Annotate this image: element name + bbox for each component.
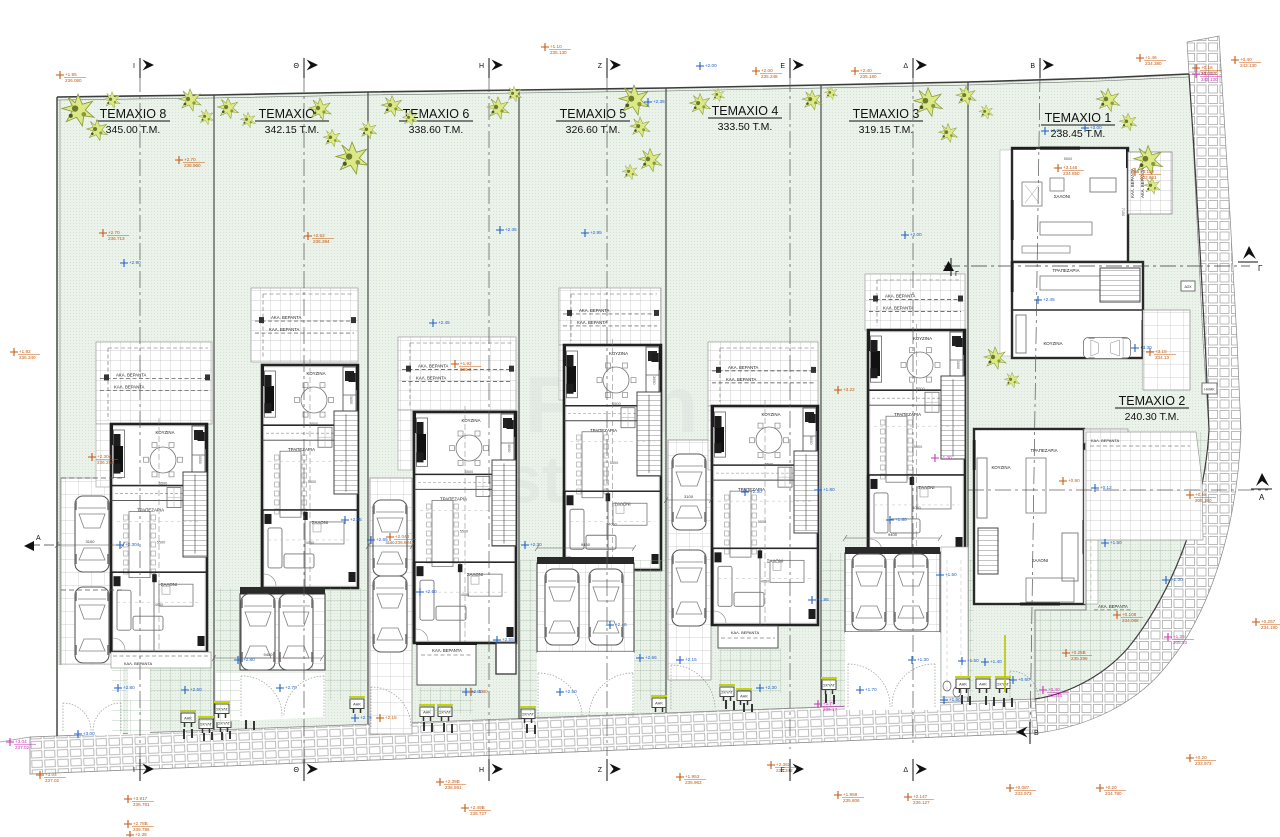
svg-text:+1.50: +1.50: [967, 658, 979, 663]
svg-text:5500: 5500: [310, 422, 318, 426]
svg-text:236.127: 236.127: [913, 800, 930, 805]
svg-text:+3.00: +3.00: [83, 731, 95, 736]
svg-text:9400: 9400: [888, 532, 898, 537]
svg-text:+0.12: +0.12: [1195, 492, 1207, 497]
svg-text:234.190: 234.190: [1261, 625, 1278, 630]
svg-text:ΚΑΛ. ΒΕΡΑΝΤΑ: ΚΑΛ. ΒΕΡΑΝΤΑ: [883, 306, 914, 311]
svg-text:ΚΑΛ. ΒΕΡΑΝΤΑ: ΚΑΛ. ΒΕΡΑΝΤΑ: [124, 661, 153, 666]
svg-text:ΤΕΜΑΧΙΟ 4: ΤΕΜΑΧΙΟ 4: [712, 104, 779, 118]
svg-text:+2.147: +2.147: [913, 794, 928, 799]
svg-text:236.591: 236.591: [445, 785, 462, 790]
svg-text:+2.95: +2.95: [590, 230, 602, 235]
svg-text:233.861: 233.861: [1140, 175, 1157, 180]
svg-text:+2.70: +2.70: [184, 157, 196, 162]
svg-text:+2.35: +2.35: [505, 227, 517, 232]
svg-text:+0.20: +0.20: [1105, 785, 1117, 790]
svg-text:9450: 9450: [581, 542, 591, 547]
svg-text:Η: Η: [479, 767, 484, 774]
svg-text:Θ: Θ: [294, 63, 300, 70]
svg-text:+2.30: +2.30: [765, 685, 777, 690]
svg-text:+2.45: +2.45: [350, 517, 362, 522]
svg-text:+2.45: +2.45: [1043, 297, 1055, 302]
svg-text:ΤΡΑΠΕΖΑΡΙΑ: ΤΡΑΠΕΖΑΡΙΑ: [1053, 268, 1080, 273]
svg-text:+1.35: +1.35: [1173, 634, 1185, 639]
svg-text:+2.304: +2.304: [97, 454, 112, 459]
svg-text:+2.80: +2.80: [243, 657, 255, 662]
svg-text:+3.00: +3.00: [1050, 128, 1062, 133]
svg-text:7100: 7100: [1121, 208, 1125, 216]
svg-text:5500: 5500: [157, 541, 165, 545]
svg-text:237.02: 237.02: [15, 745, 29, 750]
svg-text:+2.45: +2.45: [438, 320, 450, 325]
svg-text:+3.119: +3.119: [1140, 169, 1154, 174]
svg-text:+2.52: +2.52: [313, 233, 325, 238]
svg-text:+2.60: +2.60: [425, 589, 437, 594]
svg-text:+3.917: +3.917: [133, 796, 148, 801]
svg-text:+2.044: +2.044: [395, 534, 410, 539]
svg-text:319.15 Τ.Μ.: 319.15 Τ.Μ.: [859, 124, 914, 136]
svg-text:+1.50: +1.50: [1110, 540, 1122, 545]
svg-text:3650: 3650: [198, 455, 202, 463]
svg-text:235.130: 235.130: [550, 50, 567, 55]
svg-text:+0.087: +0.087: [1015, 785, 1030, 790]
svg-text:ΑΗΚ: ΑΗΚ: [655, 702, 663, 706]
svg-text:Ζ: Ζ: [598, 767, 603, 774]
svg-text:236.340: 236.340: [19, 355, 36, 360]
svg-text:5500: 5500: [765, 462, 773, 466]
svg-text:Ζ: Ζ: [598, 63, 603, 70]
svg-text:Α: Α: [36, 535, 41, 542]
svg-text:ΚΟΥΖΙΝΑ: ΚΟΥΖΙΝΑ: [462, 418, 481, 423]
svg-text:+3.30: +3.30: [1140, 345, 1152, 350]
svg-text:ΑΚΑ. ΒΕΡΑΝΤΑ: ΑΚΑ. ΒΕΡΑΝΤΑ: [418, 364, 449, 369]
svg-text:+2.70: +2.70: [108, 230, 120, 235]
svg-text:ΑΗΚ: ΑΗΚ: [740, 695, 748, 699]
svg-text:+1.60: +1.60: [949, 697, 961, 702]
svg-text:+2.15: +2.15: [385, 715, 397, 720]
svg-text:ΤΕΜΑΧΙΟ 1: ΤΕΜΑΧΙΟ 1: [1045, 111, 1112, 125]
svg-text:Ε: Ε: [780, 63, 785, 70]
svg-text:Θ: Θ: [294, 767, 300, 774]
svg-text:+1.95: +1.95: [65, 72, 77, 77]
svg-text:ΑΚΑ. ΒΕΡΑΝΤΑ: ΑΚΑ. ΒΕΡΑΝΤΑ: [271, 315, 302, 320]
svg-text:+2.90: +2.90: [129, 260, 141, 265]
svg-text:+2.49B: +2.49B: [470, 805, 485, 810]
svg-text:333.50 Τ.Μ.: 333.50 Τ.Μ.: [718, 121, 773, 133]
svg-text:+0.40: +0.40: [1201, 71, 1213, 76]
svg-text:5500: 5500: [914, 445, 922, 449]
svg-text:Η: Η: [479, 63, 484, 70]
svg-text:234.850: 234.850: [1063, 171, 1080, 176]
svg-text:+2.15: +2.15: [685, 657, 697, 662]
svg-text:+1.80: +1.80: [823, 487, 835, 492]
svg-text:5500: 5500: [1064, 157, 1072, 161]
svg-text:236.727: 236.727: [470, 811, 487, 816]
svg-text:+0.50: +0.50: [1018, 677, 1030, 682]
svg-text:+2.00: +2.00: [705, 63, 717, 68]
svg-text:236.624: 236.624: [395, 540, 412, 545]
svg-text:5500: 5500: [308, 480, 316, 484]
svg-text:ΚΟΥΖΙΝΑ: ΚΟΥΖΙΝΑ: [913, 336, 932, 341]
svg-text:+1.92: +1.92: [19, 349, 31, 354]
svg-text:Δ: Δ: [903, 767, 908, 774]
svg-text:Β: Β: [1034, 730, 1039, 737]
svg-text:236.17: 236.17: [823, 707, 837, 712]
svg-text:+1.92: +1.92: [460, 361, 472, 366]
svg-text:ΑΗΚ: ΑΗΚ: [959, 683, 967, 687]
svg-text:Γ: Γ: [1258, 264, 1263, 273]
svg-text:+1.50: +1.50: [945, 572, 957, 577]
svg-text:Ι: Ι: [133, 63, 135, 70]
svg-text:+1.30: +1.30: [917, 657, 929, 662]
svg-text:+2.362: +2.362: [776, 762, 791, 767]
svg-text:+0.90: +0.90: [1068, 478, 1080, 483]
svg-text:234.380: 234.380: [1145, 61, 1162, 66]
svg-text:345.00 Τ.Μ.: 345.00 Τ.Μ.: [106, 124, 161, 136]
svg-text:+1.86: +1.86: [817, 597, 829, 602]
svg-text:+1.77: +1.77: [823, 701, 835, 706]
svg-text:ΚΑΛ. ΒΕΡΑΝΤΑ: ΚΑΛ. ΒΕΡΑΝΤΑ: [269, 327, 300, 332]
svg-text:5500: 5500: [916, 387, 924, 391]
svg-text:234.13: 234.13: [1155, 355, 1169, 360]
svg-text:234.088: 234.088: [1122, 618, 1139, 623]
svg-text:+2.35: +2.35: [653, 99, 665, 104]
svg-text:235.806: 235.806: [843, 798, 860, 803]
svg-text:+1.30: +1.30: [940, 455, 952, 460]
svg-text:236.713: 236.713: [108, 236, 125, 241]
svg-text:+0.257: +0.257: [1261, 619, 1276, 624]
svg-text:+1.40: +1.40: [990, 659, 1002, 664]
svg-text:205.45: 205.45: [1048, 693, 1062, 698]
svg-text:235.180: 235.180: [860, 74, 877, 79]
svg-text:ΑΚΑ. ΒΕΡΑΝΤΑ: ΑΚΑ. ΒΕΡΑΝΤΑ: [728, 365, 759, 370]
svg-text:ΔΟΧ: ΔΟΧ: [1184, 285, 1192, 289]
svg-text:ΑΗΚ: ΑΗΚ: [979, 683, 987, 687]
svg-text:ΚΟΥΖΙΝΑ: ΚΟΥΖΙΝΑ: [609, 351, 628, 356]
svg-text:3650: 3650: [956, 361, 960, 369]
svg-text:+1.958: +1.958: [843, 792, 858, 797]
svg-text:3650: 3650: [507, 444, 511, 452]
svg-text:326.60 Τ.Μ.: 326.60 Τ.Μ.: [566, 124, 621, 136]
svg-text:+2.66: +2.66: [645, 655, 657, 660]
svg-text:+3.146: +3.146: [1063, 165, 1078, 170]
svg-text:ΣΚΥΛΤ: ΣΚΥΛΤ: [522, 713, 534, 717]
svg-text:+0.16: +0.16: [1201, 65, 1213, 70]
svg-text:ΑΚΑ. ΒΕΡΑΝΤΑ: ΑΚΑ. ΒΕΡΑΝΤΑ: [579, 308, 610, 313]
svg-text:3100: 3100: [684, 494, 694, 499]
svg-text:236.781: 236.781: [133, 802, 150, 807]
svg-text:+0.12: +0.12: [1100, 485, 1112, 490]
svg-text:240.30 Τ.Μ.: 240.30 Τ.Μ.: [1125, 411, 1180, 423]
svg-text:ΚΑΛ. ΒΕΡΑΝΤΑ: ΚΑΛ. ΒΕΡΑΝΤΑ: [577, 320, 608, 325]
svg-text:+2.55: +2.55: [502, 637, 514, 642]
svg-text:+3.00: +3.00: [1090, 125, 1102, 130]
svg-text:ΑΚΑ. ΒΕΡΑΝΤΑ: ΑΚΑ. ΒΕΡΑΝΤΑ: [116, 372, 147, 377]
svg-text:ΚΑΛ. ΒΕΡΑΝΤΑ: ΚΑΛ. ΒΕΡΑΝΤΑ: [726, 377, 757, 382]
svg-text:+2.80: +2.80: [123, 685, 135, 690]
svg-text:ΚΟΥΖΙΝΑ: ΚΟΥΖΙΝΑ: [992, 465, 1011, 470]
svg-text:233.973: 233.973: [1195, 761, 1212, 766]
svg-text:ΤΕΜΑΧΙΟ 5: ΤΕΜΑΧΙΟ 5: [560, 107, 627, 121]
svg-text:+3.04: +3.04: [45, 772, 57, 777]
svg-text:237.02: 237.02: [45, 778, 59, 783]
svg-text:Δ: Δ: [903, 63, 908, 70]
svg-text:+2.00: +2.00: [761, 68, 773, 73]
svg-text:ΑΚΑ. ΒΕΡΑΝΤΑ: ΑΚΑ. ΒΕΡΑΝΤΑ: [885, 294, 916, 299]
svg-text:+2.40: +2.40: [860, 68, 872, 73]
svg-text:ΑΗΚ: ΑΗΚ: [353, 703, 361, 707]
svg-text:236.342: 236.342: [776, 768, 793, 773]
svg-text:+2.304: +2.304: [125, 542, 140, 547]
svg-text:243.130: 243.130: [1240, 63, 1257, 68]
svg-text:+3.04: +3.04: [15, 739, 27, 744]
svg-text:+1.80: +1.80: [895, 517, 907, 522]
svg-text:+0.20: +0.20: [1195, 755, 1207, 760]
svg-text:ΣΑΛΟΝΙ: ΣΑΛΟΝΙ: [1054, 194, 1070, 199]
svg-text:3100: 3100: [86, 539, 96, 544]
svg-text:+2.30: +2.30: [530, 542, 542, 547]
svg-text:+0.108: +0.108: [1122, 612, 1137, 617]
svg-text:Ι: Ι: [133, 767, 135, 774]
svg-text:+2.75: +2.75: [360, 715, 372, 720]
svg-text:+0.40: +0.40: [1240, 57, 1252, 62]
svg-text:338.60 Τ.Μ.: 338.60 Τ.Μ.: [409, 124, 464, 136]
svg-text:ΤΕΜΑΧΙΟ 8: ΤΕΜΑΧΙΟ 8: [100, 107, 167, 121]
svg-text:236.394: 236.394: [313, 239, 330, 244]
svg-text:+1.10: +1.10: [550, 44, 562, 49]
svg-text:+2.65: +2.65: [376, 537, 388, 542]
svg-text:3650: 3650: [809, 436, 813, 444]
svg-text:+1.953: +1.953: [685, 774, 700, 779]
svg-text:ΤΕΜΑΧΙΟ 3: ΤΕΜΑΧΙΟ 3: [853, 107, 920, 121]
svg-text:+2.60: +2.60: [190, 687, 202, 692]
svg-text:ΤΕΜΑΧΙΟ 2: ΤΕΜΑΧΙΟ 2: [1119, 394, 1186, 408]
svg-text:ΚΑΛ. ΒΕΡΑΝΤΑ: ΚΑΛ. ΒΕΡΑΝΤΑ: [416, 376, 447, 381]
svg-text:236.060: 236.060: [65, 78, 82, 83]
svg-text:233.973: 233.973: [1015, 791, 1032, 796]
svg-text:234.780: 234.780: [1105, 791, 1122, 796]
svg-text:+2.78B: +2.78B: [133, 821, 148, 826]
svg-text:+2.50: +2.50: [565, 689, 577, 694]
svg-text:+2.39B: +2.39B: [445, 779, 460, 784]
svg-text:Α: Α: [1259, 493, 1265, 502]
svg-text:+2.30: +2.30: [471, 689, 483, 694]
svg-text:+1.46: +1.46: [1145, 55, 1157, 60]
svg-text:+3.22: +3.22: [843, 387, 855, 392]
svg-text:9400: 9400: [264, 652, 274, 657]
svg-text:+2.30: +2.30: [750, 489, 762, 494]
svg-text:Β: Β: [1030, 63, 1035, 70]
svg-text:236.294: 236.294: [97, 460, 114, 465]
svg-text:5500: 5500: [610, 461, 618, 465]
svg-text:ΚΟΥΖΙΝΑ: ΚΟΥΖΙΝΑ: [1044, 341, 1063, 346]
svg-text:342.15 Τ.Μ.: 342.15 Τ.Μ.: [265, 124, 320, 136]
svg-text:+2.70: +2.70: [285, 685, 297, 690]
svg-text:ΚΑΛ. ΒΕΡΑΝΤΑ: ΚΑΛ. ΒΕΡΑΝΤΑ: [731, 630, 760, 635]
svg-text:+3.15: +3.15: [1155, 349, 1167, 354]
svg-text:ΚΟΥΖΙΝΑ: ΚΟΥΖΙΝΑ: [156, 430, 175, 435]
svg-text:ΗΛΙΑΚ: ΗΛΙΑΚ: [1204, 388, 1215, 392]
svg-text:ΣΑΛΟΝΙ: ΣΑΛΟΝΙ: [1032, 558, 1048, 563]
svg-text:5500: 5500: [460, 529, 468, 533]
svg-text:243.130: 243.130: [1201, 77, 1218, 82]
svg-text:ΣΚΥΛΤ: ΣΚΥΛΤ: [997, 683, 1009, 687]
svg-text:3650: 3650: [349, 396, 353, 404]
svg-text:+2.00: +2.00: [910, 232, 922, 237]
svg-text:205.10: 205.10: [1173, 640, 1187, 645]
svg-text:235.248: 235.248: [761, 74, 778, 79]
svg-text:+1.70: +1.70: [865, 687, 877, 692]
svg-text:+0.40: +0.40: [1048, 687, 1060, 692]
svg-text:5500: 5500: [159, 482, 167, 486]
svg-text:+0.25Β: +0.25Β: [1071, 650, 1086, 655]
svg-text:236.5: 236.5: [460, 367, 472, 372]
svg-text:235.963: 235.963: [685, 780, 702, 785]
svg-text:+2.38: +2.38: [135, 832, 147, 837]
svg-text:205.160: 205.160: [1195, 498, 1212, 503]
svg-text:5500: 5500: [465, 470, 473, 474]
svg-text:235.298: 235.298: [1071, 656, 1088, 661]
svg-text:236.960: 236.960: [184, 163, 201, 168]
svg-text:ΚΑΛ. ΒΕΡΑΝΤΑ: ΚΑΛ. ΒΕΡΑΝΤΑ: [432, 648, 462, 653]
svg-text:+2.46: +2.46: [615, 622, 627, 627]
svg-text:ΣΚΥΛΤ: ΣΚΥΛΤ: [218, 722, 230, 726]
svg-text:+1.30: +1.30: [1171, 577, 1183, 582]
svg-text:ΚΟΥΖΙΝΑ: ΚΟΥΖΙΝΑ: [307, 371, 326, 376]
svg-text:Γ: Γ: [955, 271, 959, 278]
svg-text:ΚΟΥΖΙΝΑ: ΚΟΥΖΙΝΑ: [762, 412, 781, 417]
svg-text:3650: 3650: [652, 376, 656, 384]
svg-text:5500: 5500: [612, 402, 620, 406]
svg-text:ΚΑΛ. ΒΕΡΑΝΤΑ: ΚΑΛ. ΒΕΡΑΝΤΑ: [1091, 438, 1120, 443]
